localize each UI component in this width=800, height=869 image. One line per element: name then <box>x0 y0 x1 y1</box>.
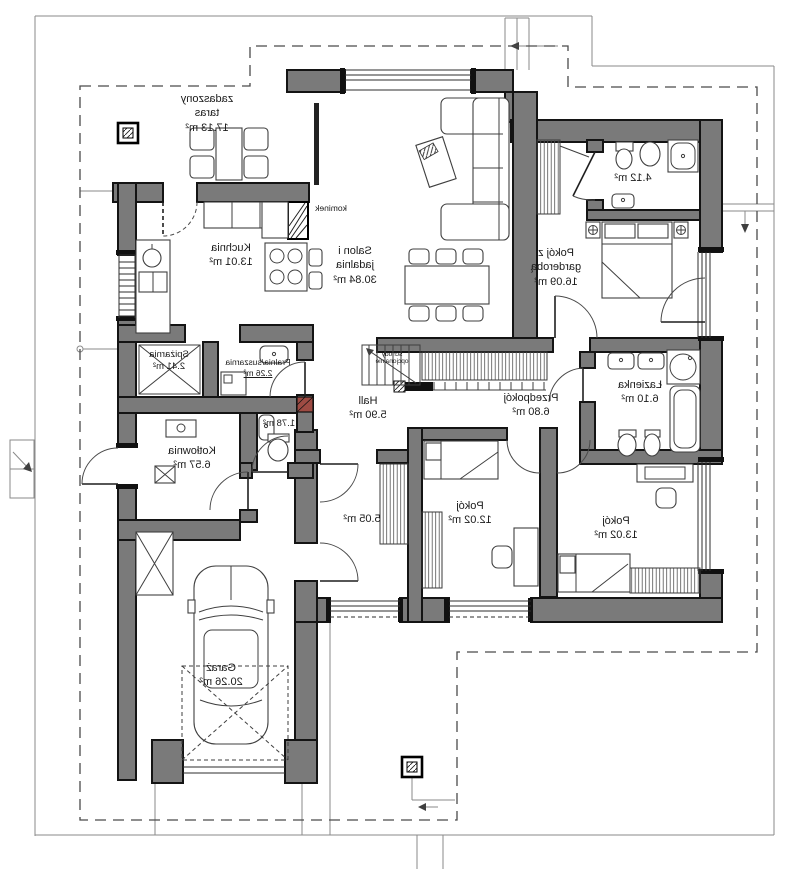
bedroom-wardrobe <box>537 140 560 214</box>
tv <box>314 103 319 185</box>
room-label-pokoj-garderoba: Pokój z garderobą16.09 m² <box>501 246 611 289</box>
room-label-przedpokoj: Przedpokój6.80 m² <box>476 391 586 420</box>
desk <box>514 528 538 586</box>
shower <box>668 140 698 172</box>
room-label-pralnia: Pralnia/suszarnia2.26 m² <box>203 357 313 379</box>
fireplace-label: kominek <box>276 203 386 214</box>
toilet <box>618 434 636 456</box>
terrace-set <box>190 128 268 180</box>
car-mirror <box>267 600 274 613</box>
pillow <box>426 443 441 460</box>
toilet <box>616 149 632 169</box>
round-sink <box>143 249 161 267</box>
room-label-pokoj-13: Pokój13.02 m² <box>561 514 671 543</box>
car <box>188 566 274 744</box>
pillow <box>560 556 575 573</box>
room-label-lazienka-mala: 4.12 m² <box>578 171 688 185</box>
room-label-garaz: Garaż20.26 m² <box>166 661 276 690</box>
kitchen-window <box>119 255 135 318</box>
terrace-column <box>118 123 138 143</box>
room-label-taras: zadaszony taras17.13 m² <box>152 92 262 135</box>
sink <box>612 194 634 208</box>
garage-gate <box>183 767 285 773</box>
porch-column <box>402 757 422 777</box>
pillow <box>605 224 635 238</box>
hanger-rail <box>430 382 546 390</box>
room-label-pokoj-12: Pokój12.02 m² <box>415 499 525 528</box>
floor-plan-drawing <box>0 0 800 869</box>
garage-door <box>320 543 358 581</box>
hall-corridor-door <box>320 464 358 502</box>
room12-door <box>507 440 540 473</box>
room-label-wc: 1.78 m² <box>224 418 334 430</box>
toilet <box>268 439 288 461</box>
chair <box>656 488 676 508</box>
room-label-kuchnia: Kuchnia13.01 m² <box>176 241 286 270</box>
corridor-wardrobe <box>380 464 408 544</box>
room-label-lazienka: Łazienka6.10 m² <box>585 378 695 407</box>
sink <box>638 353 664 369</box>
garage-shaft <box>136 532 173 595</box>
terrace-kitchen-door <box>163 202 197 236</box>
room-label-korytarz: 5.05 m² <box>307 512 417 526</box>
room-label-kotlownia: Kotłownia6.57 m² <box>137 444 247 473</box>
sink <box>640 142 660 166</box>
car-mirror <box>188 600 195 613</box>
optional-stairs-label: schody opcjonalnie <box>337 351 447 366</box>
sink <box>608 353 634 369</box>
main-entrance-door <box>82 448 118 484</box>
room-label-salon: Salon i jadalnia30.84 m² <box>300 244 410 287</box>
bedroom-door <box>555 296 597 338</box>
dining-set <box>405 249 489 321</box>
pillow <box>638 224 668 238</box>
coffee-table <box>416 137 456 187</box>
bidet <box>644 434 660 456</box>
room13-wardrobe <box>630 568 700 593</box>
chair <box>492 546 512 568</box>
floor-plan: zadaszony taras17.13 m² Kuchnia13.01 m² … <box>0 0 800 869</box>
chimney-flue-marker <box>297 397 313 412</box>
